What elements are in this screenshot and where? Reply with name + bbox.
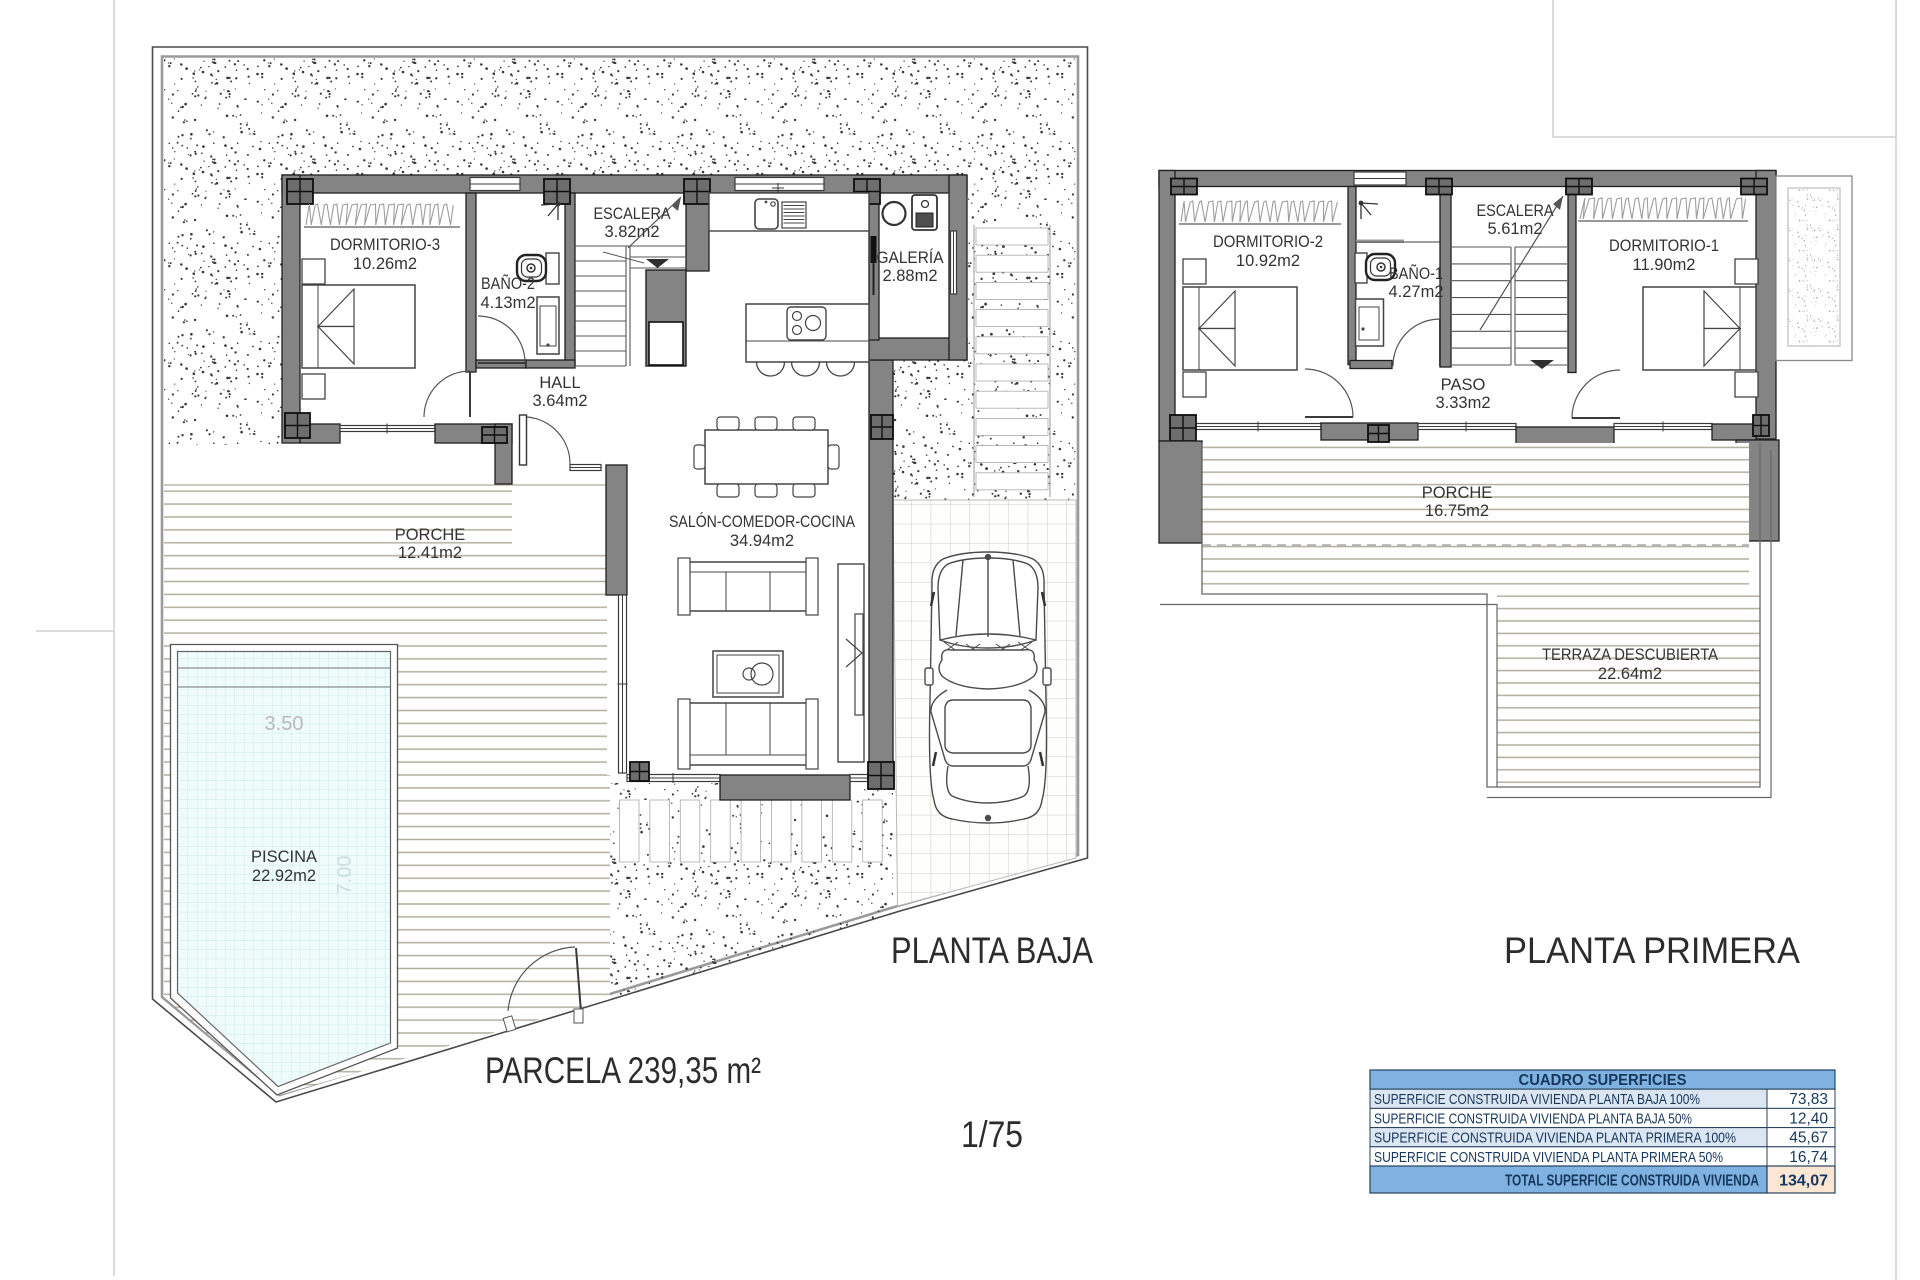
- svg-text:PORCHE: PORCHE: [1422, 484, 1493, 502]
- svg-text:1/75: 1/75: [961, 1114, 1023, 1155]
- svg-text:BAÑO-1: BAÑO-1: [1389, 263, 1443, 283]
- svg-text:DORMITORIO-3: DORMITORIO-3: [330, 236, 440, 254]
- svg-text:GALERÍA: GALERÍA: [877, 248, 944, 267]
- svg-text:PORCHE: PORCHE: [395, 526, 466, 544]
- svg-text:SALÓN-COMEDOR-COCINA: SALÓN-COMEDOR-COCINA: [669, 512, 855, 531]
- svg-text:11.90m2: 11.90m2: [1633, 256, 1696, 274]
- svg-text:16,74: 16,74: [1789, 1149, 1828, 1166]
- svg-text:TERRAZA DESCUBIERTA: TERRAZA DESCUBIERTA: [1542, 646, 1718, 664]
- svg-text:5.61m2: 5.61m2: [1487, 220, 1542, 238]
- svg-text:3.33m2: 3.33m2: [1435, 394, 1490, 412]
- svg-text:DORMITORIO-1: DORMITORIO-1: [1609, 237, 1719, 255]
- svg-text:22.64m2: 22.64m2: [1598, 665, 1662, 683]
- svg-text:2.88m2: 2.88m2: [882, 267, 937, 285]
- svg-text:4.27m2: 4.27m2: [1388, 283, 1443, 301]
- svg-text:PASO: PASO: [1441, 376, 1486, 394]
- svg-text:45,67: 45,67: [1789, 1130, 1828, 1147]
- svg-text:7.00: 7.00: [334, 856, 356, 895]
- svg-text:12,40: 12,40: [1789, 1110, 1828, 1127]
- svg-text:134,07: 134,07: [1779, 1173, 1828, 1190]
- svg-text:HALL: HALL: [539, 374, 580, 392]
- svg-text:SUPERFICIE CONSTRUIDA VIVIENDA: SUPERFICIE CONSTRUIDA VIVIENDA PLANTA PR…: [1374, 1149, 1723, 1166]
- svg-text:SUPERFICIE CONSTRUIDA VIVIENDA: SUPERFICIE CONSTRUIDA VIVIENDA PLANTA PR…: [1374, 1130, 1736, 1147]
- svg-text:PARCELA 239,35 m²: PARCELA 239,35 m²: [485, 1050, 761, 1091]
- svg-text:10.26m2: 10.26m2: [353, 255, 417, 273]
- svg-text:22.92m2: 22.92m2: [252, 867, 316, 885]
- svg-text:3.50: 3.50: [265, 713, 304, 735]
- svg-text:SUPERFICIE CONSTRUIDA VIVIENDA: SUPERFICIE CONSTRUIDA VIVIENDA PLANTA BA…: [1374, 1091, 1700, 1108]
- svg-text:BAÑO-2: BAÑO-2: [481, 273, 535, 293]
- svg-text:10.92m2: 10.92m2: [1236, 252, 1300, 270]
- svg-text:73,83: 73,83: [1789, 1091, 1828, 1108]
- svg-text:3.64m2: 3.64m2: [532, 392, 587, 410]
- svg-text:16.75m2: 16.75m2: [1425, 502, 1489, 520]
- svg-text:ESCALERA: ESCALERA: [1477, 202, 1554, 220]
- svg-text:PISCINA: PISCINA: [251, 848, 317, 866]
- svg-text:PLANTA PRIMERA: PLANTA PRIMERA: [1504, 930, 1800, 971]
- svg-text:TOTAL SUPERFICIE CONSTRUIDA VI: TOTAL SUPERFICIE CONSTRUIDA VIVIENDA: [1505, 1173, 1759, 1190]
- svg-text:DORMITORIO-2: DORMITORIO-2: [1213, 233, 1323, 251]
- svg-text:4.13m2: 4.13m2: [480, 294, 535, 312]
- svg-text:PLANTA BAJA: PLANTA BAJA: [891, 930, 1093, 971]
- svg-text:CUADRO SUPERFICIES: CUADRO SUPERFICIES: [1519, 1072, 1687, 1089]
- svg-text:ESCALERA: ESCALERA: [594, 205, 671, 223]
- svg-text:34.94m2: 34.94m2: [730, 532, 794, 550]
- svg-text:12.41m2: 12.41m2: [398, 544, 462, 562]
- svg-text:SUPERFICIE CONSTRUIDA VIVIENDA: SUPERFICIE CONSTRUIDA VIVIENDA PLANTA BA…: [1374, 1110, 1692, 1127]
- svg-text:3.82m2: 3.82m2: [604, 223, 659, 241]
